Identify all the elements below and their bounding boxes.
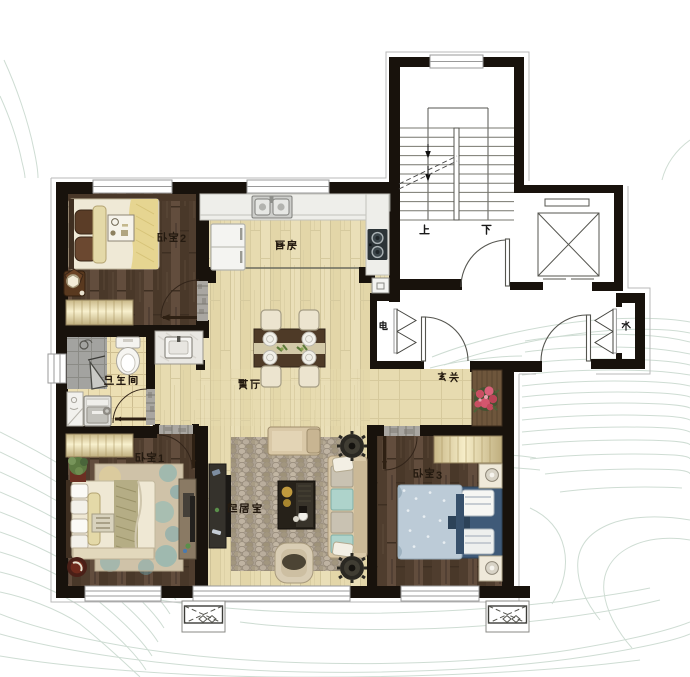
svg-text:3: 3 <box>436 470 442 482</box>
svg-text:1: 1 <box>158 453 164 465</box>
svg-text:2: 2 <box>180 233 186 245</box>
